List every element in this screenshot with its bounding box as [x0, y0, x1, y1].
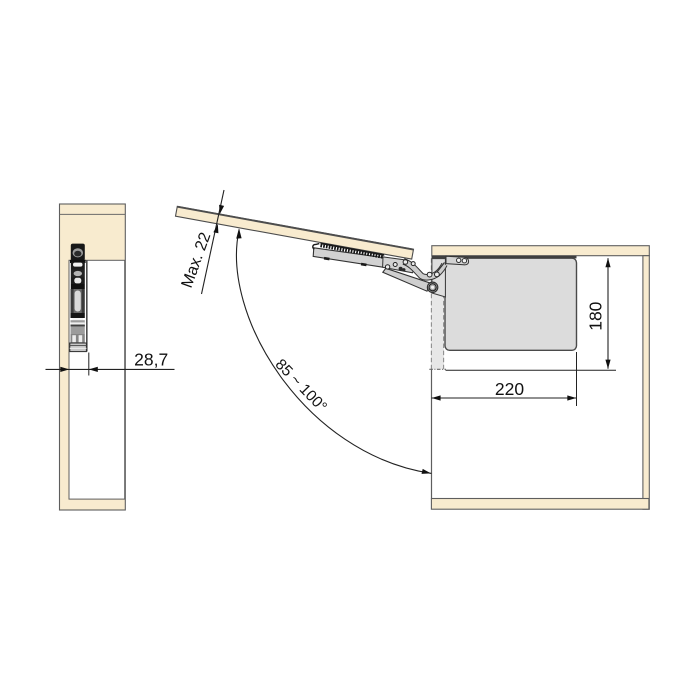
svg-text:180: 180 [586, 301, 606, 330]
svg-text:220: 220 [495, 379, 524, 399]
svg-text:28,7: 28,7 [134, 350, 168, 370]
